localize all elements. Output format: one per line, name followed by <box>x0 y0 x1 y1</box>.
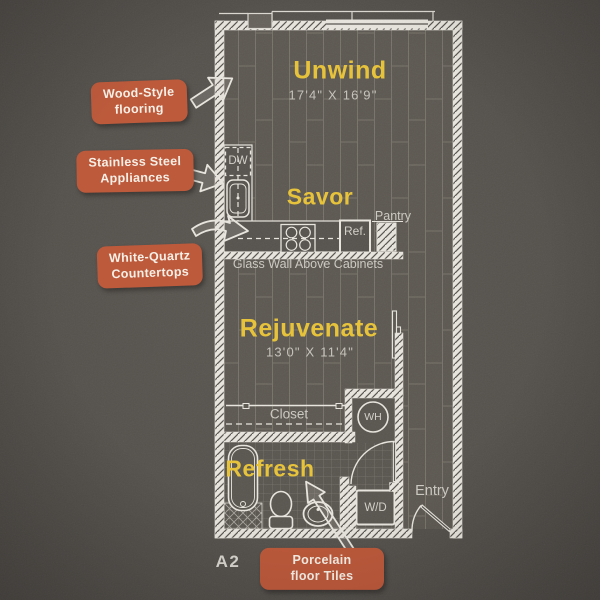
room-title-savor: Savor <box>287 184 353 211</box>
room-title-rejuvenate: Rejuvenate <box>240 315 378 344</box>
callout-white-quartz-countertops: White-Quartz Countertops <box>97 243 204 289</box>
callout-line: Wood-Style <box>103 85 175 103</box>
room-title-unwind: Unwind <box>293 57 386 86</box>
callout-line: Stainless Steel <box>88 154 181 171</box>
room-dims-unwind: 17'4" X 16'9" <box>288 88 377 103</box>
room-title-refresh: Refresh <box>225 456 314 483</box>
callout-porcelain-floor-tiles: Porcelain floor Tiles <box>260 548 384 590</box>
room-dims-rejuvenate: 13'0" X 11'4" <box>266 345 354 360</box>
pantry-label: Pantry <box>375 209 411 223</box>
glass-wall-label: Glass Wall Above Cabinets <box>233 257 383 271</box>
water-heater-label: WH <box>364 411 382 423</box>
callout-line: floor Tiles <box>272 569 372 585</box>
callout-line: Countertops <box>109 264 191 282</box>
plan-code-label: A2 <box>216 552 241 572</box>
entry-label: Entry <box>415 483 449 499</box>
callout-stainless-steel-appliances: Stainless Steel Appliances <box>76 149 193 193</box>
callout-wood-style-flooring: Wood-Style flooring <box>91 79 188 125</box>
callout-line: flooring <box>103 100 175 118</box>
callout-line: Porcelain <box>272 553 372 569</box>
closet-label: Closet <box>270 407 308 422</box>
floor-plan-page: Unwind 17'4" X 16'9" Savor Rejuvenate 13… <box>0 0 600 600</box>
dishwasher-label: DW <box>228 155 247 167</box>
callout-line: Appliances <box>89 170 182 187</box>
refrigerator-label: Ref. <box>344 224 366 238</box>
washer-dryer-label: W/D <box>364 502 386 514</box>
